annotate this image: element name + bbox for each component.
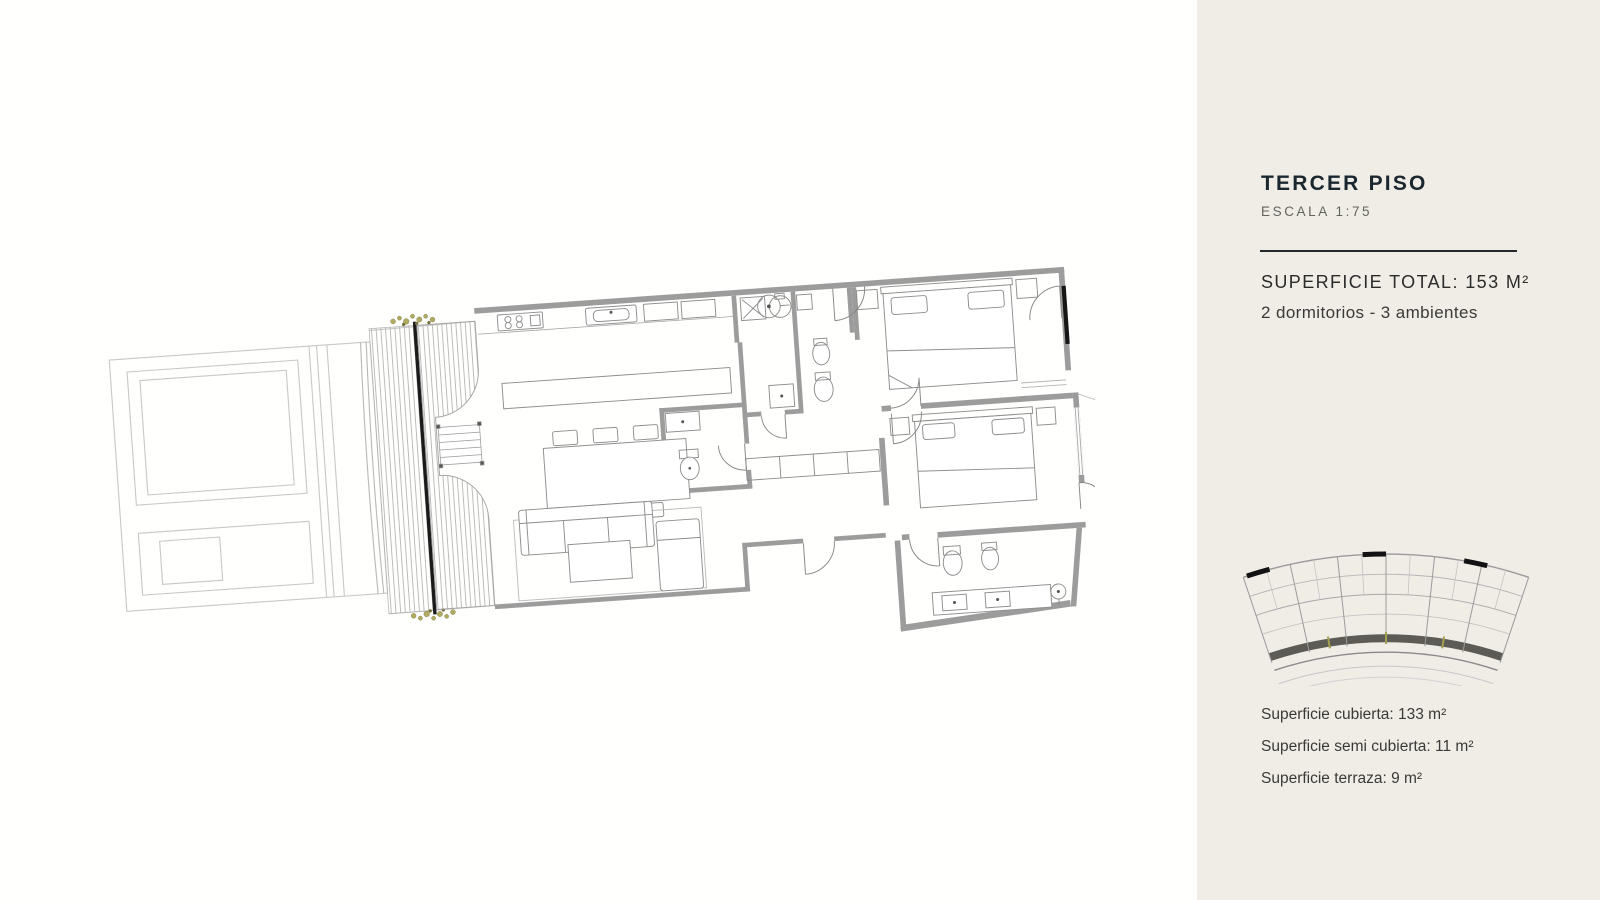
laundry (740, 293, 792, 321)
window-bed2 (1074, 407, 1084, 475)
tipologia-label: 2 dormitorios - 3 ambientes (1261, 303, 1478, 323)
info-panel: TERCER PISO ESCALA 1:75 SUPERFICIE TOTAL… (1197, 0, 1600, 900)
bed-1 (856, 275, 1066, 399)
area-semi-cubierta: Superficie semi cubierta: 11 m² (1261, 738, 1474, 756)
main-floor-plan (85, 222, 1095, 682)
divider-line (1260, 250, 1517, 252)
corridor-shelf (746, 449, 881, 480)
kitchen-island (502, 368, 732, 409)
superficie-total-label: SUPERFICIE TOTAL: 153 M² (1261, 272, 1530, 293)
page: TERCER PISO ESCALA 1:75 SUPERFICIE TOTAL… (0, 0, 1600, 900)
area-terraza: Superficie terraza: 9 m² (1261, 770, 1474, 788)
page-title: TERCER PISO (1261, 172, 1428, 196)
living-room (513, 498, 707, 601)
deck-railing (436, 422, 484, 468)
area-breakdown: Superficie cubierta: 133 m² Superficie s… (1261, 706, 1474, 802)
area-cubierta: Superficie cubierta: 133 m² (1261, 706, 1474, 724)
bathroom-ensuite (929, 537, 1067, 615)
scale-label: ESCALA 1:75 (1261, 204, 1428, 219)
building-overview-plan (1238, 526, 1534, 686)
bed-2 (890, 405, 1062, 509)
main-floor-plan-svg (85, 222, 1095, 682)
